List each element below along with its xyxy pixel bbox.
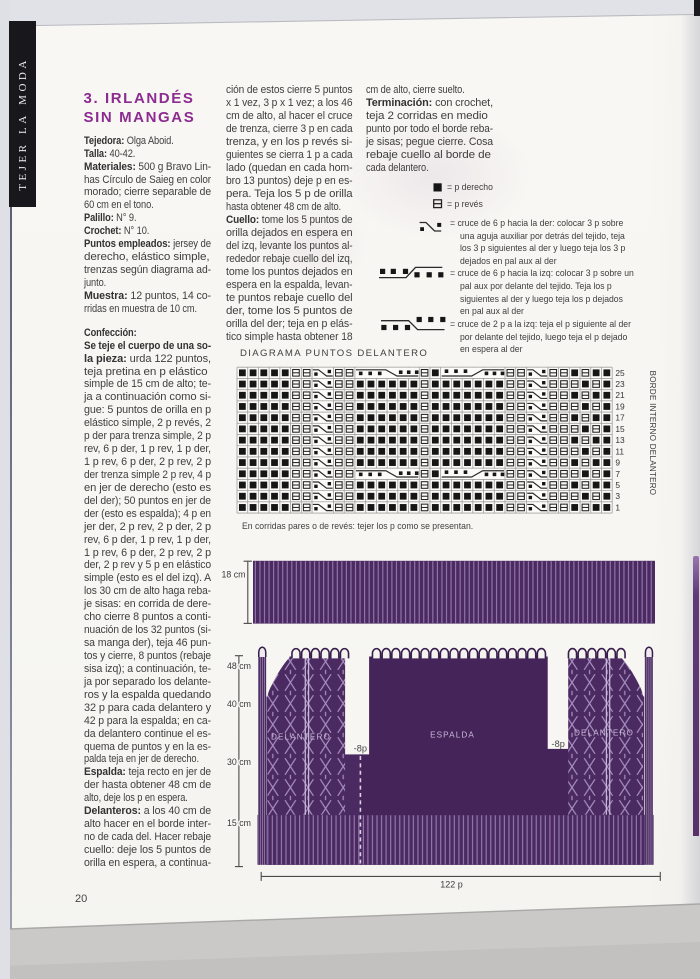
svg-text:3: 3 [615, 491, 620, 501]
svg-text:ESPALDA: ESPALDA [430, 731, 475, 740]
svg-text:5: 5 [615, 480, 620, 490]
svg-text:15: 15 [615, 424, 625, 434]
svg-text:1: 1 [615, 502, 620, 512]
svg-text:17: 17 [615, 413, 625, 423]
svg-text:25: 25 [615, 368, 625, 378]
svg-text:DELANTERO: DELANTERO [574, 729, 634, 738]
svg-text:15 cm: 15 cm [227, 818, 251, 828]
svg-text:13: 13 [615, 435, 625, 445]
svg-text:23: 23 [615, 379, 625, 389]
svg-text:48 cm: 48 cm [227, 661, 251, 671]
svg-text:9: 9 [615, 458, 620, 468]
svg-text:11: 11 [615, 446, 624, 456]
svg-text:122 p: 122 p [440, 880, 463, 890]
svg-text:-8p: -8p [552, 739, 565, 749]
svg-text:18 cm: 18 cm [222, 570, 246, 580]
svg-text:21: 21 [615, 390, 625, 400]
svg-text:40 cm: 40 cm [227, 699, 251, 709]
svg-text:DELANTERO: DELANTERO [271, 733, 331, 742]
svg-text:-8p: -8p [354, 744, 367, 754]
svg-text:7: 7 [615, 469, 620, 479]
svg-text:30 cm: 30 cm [227, 757, 251, 767]
svg-text:19: 19 [615, 402, 625, 412]
